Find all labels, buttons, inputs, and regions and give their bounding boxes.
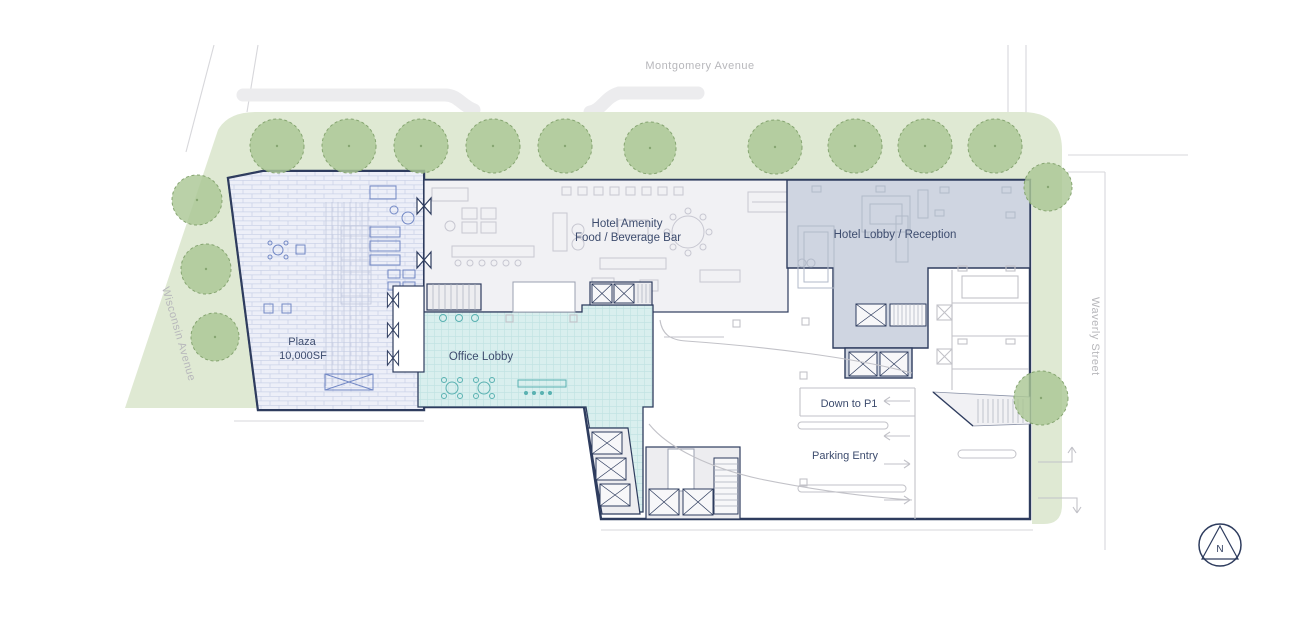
building: Plaza 10,000SF: [228, 171, 1081, 519]
office-lobby-label: Office Lobby: [449, 351, 514, 363]
north-arrow-n: N: [1216, 544, 1223, 555]
tree: [968, 119, 1022, 173]
tree: [1014, 371, 1068, 425]
tree: [172, 175, 222, 225]
tree: [898, 119, 952, 173]
tree: [748, 120, 802, 174]
north-arrow: N: [1199, 524, 1241, 566]
tree: [828, 119, 882, 173]
plaza-label: Plaza: [288, 336, 316, 348]
tree: [181, 244, 231, 294]
street-label-montgomery: Montgomery Avenue: [645, 60, 754, 72]
street-label-waverly: Waverly Street: [1089, 297, 1101, 376]
hotel-lobby-label: Hotel Lobby / Reception: [834, 229, 957, 241]
down-to-p1-label: Down to P1: [821, 398, 878, 410]
site-plan-drawing: Plaza 10,000SF: [0, 0, 1290, 620]
tree: [250, 119, 304, 173]
road-median-right: [590, 93, 698, 112]
tree: [466, 119, 520, 173]
tree: [1024, 163, 1072, 211]
site-plan-page: Plaza 10,000SF: [0, 0, 1290, 620]
tree: [538, 119, 592, 173]
tree: [624, 122, 676, 174]
road-median-left: [243, 95, 474, 110]
plaza-size-label: 10,000SF: [279, 350, 327, 362]
amenity-label-line1: Hotel Amenity: [592, 218, 663, 230]
amenity-label-line2: Food / Beverage Bar: [575, 232, 681, 244]
tree: [322, 119, 376, 173]
tree: [191, 313, 239, 361]
tree: [394, 119, 448, 173]
parking-entry-label: Parking Entry: [812, 450, 879, 462]
